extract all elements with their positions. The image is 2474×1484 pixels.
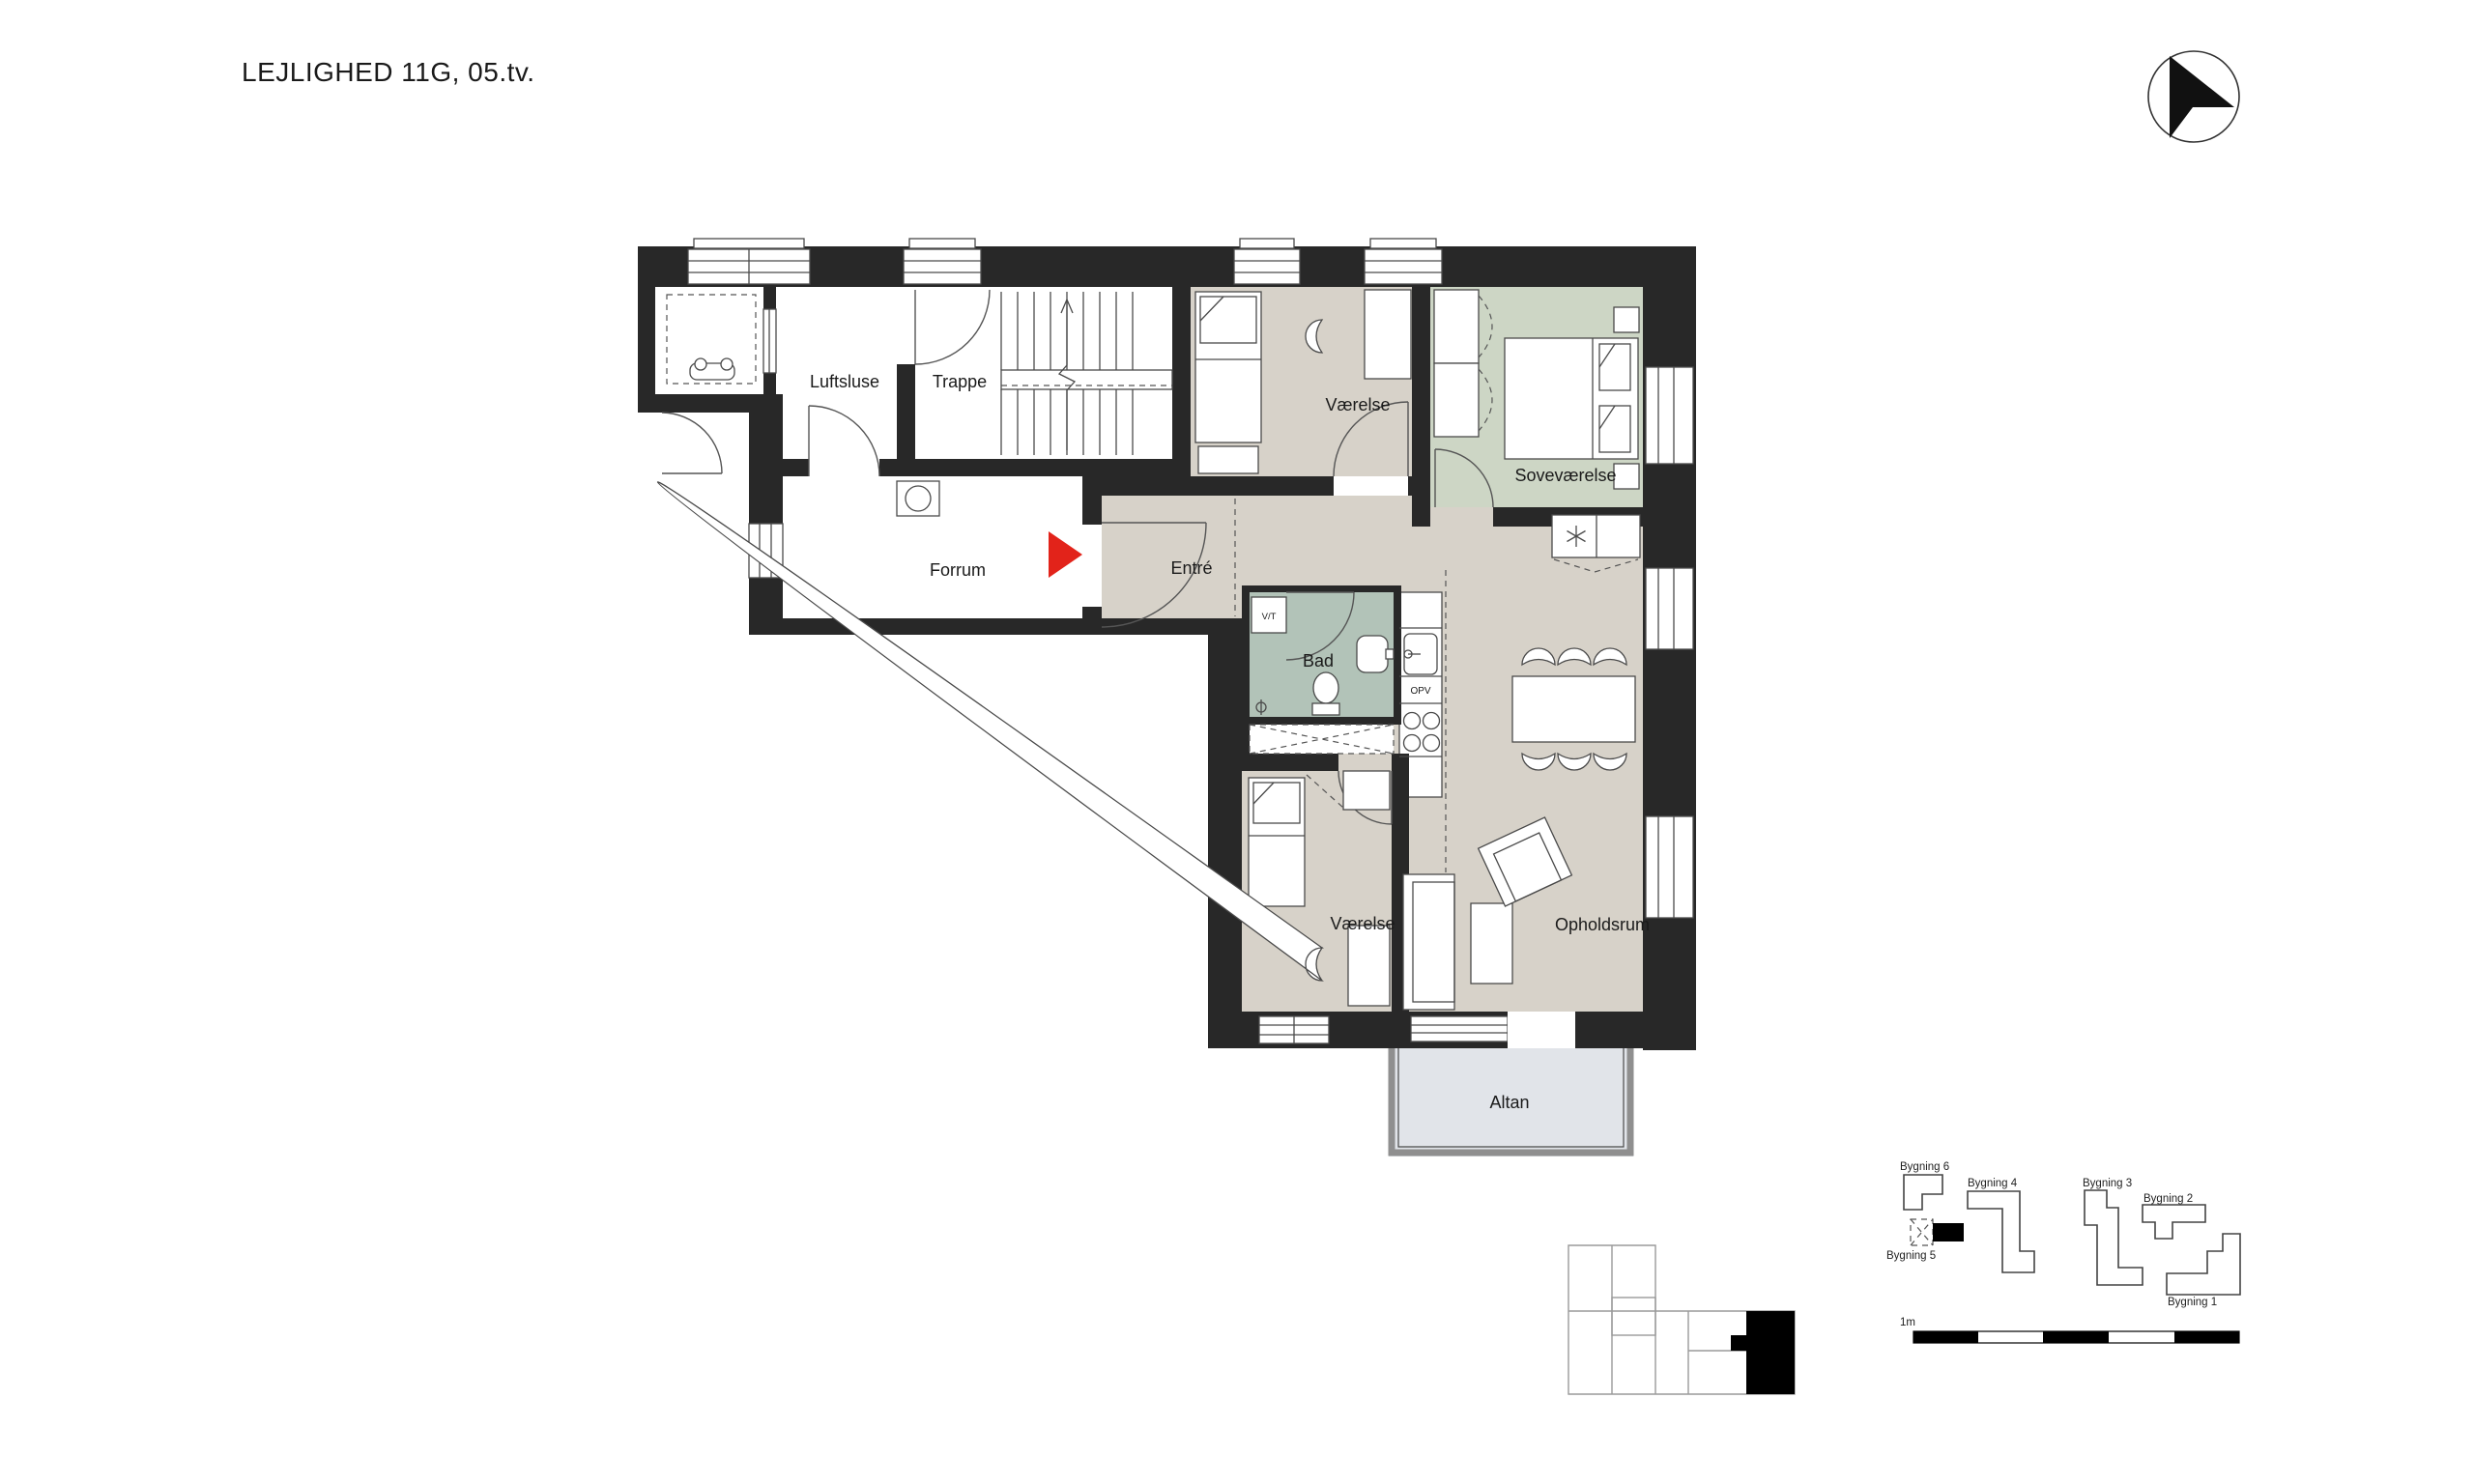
unit-highlight	[1731, 1311, 1795, 1394]
toilet	[1312, 672, 1339, 715]
bygning-2-shape	[2143, 1205, 2205, 1239]
window-right-2	[1646, 568, 1693, 649]
label-dishwasher: OPV	[1410, 686, 1430, 697]
scale-label: 1m	[1900, 1317, 1915, 1328]
sofa	[1403, 874, 1454, 1010]
wardrobe-vaerelse-syd	[1343, 771, 1390, 810]
desk-vaerelse-syd	[1348, 926, 1390, 1006]
dresser-vaerelse-nord	[1198, 446, 1258, 473]
bygning-6-shape	[1904, 1175, 1942, 1210]
window-top-1	[688, 239, 810, 284]
kitchen-sink	[1404, 634, 1437, 674]
label-entre: Entré	[1170, 558, 1212, 578]
nightstand-sovevaerelse-top	[1614, 307, 1639, 332]
nightstand-sovevaerelse-bottom	[1614, 464, 1639, 489]
window-top-4	[1365, 239, 1442, 284]
bygning-4-shape	[1968, 1191, 2034, 1272]
label-sovevaerelse: Soveværelse	[1514, 466, 1616, 485]
bed-vaerelse-syd	[1249, 778, 1305, 906]
label-bygning-4: Bygning 4	[1968, 1178, 2018, 1189]
label-trappe: Trappe	[933, 372, 987, 391]
unit-key-plan	[1568, 1245, 1795, 1394]
window-right-1	[1646, 367, 1693, 464]
label-bygning-6: Bygning 6	[1900, 1161, 1949, 1173]
window-top-2	[904, 239, 981, 284]
label-luftsluse: Luftsluse	[810, 372, 879, 391]
dining-table	[1512, 676, 1635, 742]
label-altan: Altan	[1489, 1093, 1529, 1112]
label-bygning-5: Bygning 5	[1886, 1250, 1936, 1262]
floorplan-canvas: LEJLIGHED 11G, 05.tv.	[0, 0, 2474, 1484]
bed-vaerelse-nord	[1195, 292, 1261, 442]
scale-bar: 1m	[1900, 1317, 2239, 1343]
label-forrum: Forrum	[930, 560, 986, 580]
window-right-3	[1646, 816, 1693, 918]
bygning-1-shape	[2167, 1234, 2240, 1295]
label-bygning-1: Bygning 1	[2168, 1297, 2217, 1308]
stair-landing	[1001, 370, 1172, 389]
label-bygning-2: Bygning 2	[2143, 1193, 2193, 1205]
double-bed-sovevaerelse	[1505, 338, 1638, 459]
bygning-5-marker	[1911, 1219, 1964, 1245]
building-key-plans: Bygning 6 Bygning 4 Bygning 3 Bygning 2 …	[1886, 1161, 2240, 1308]
label-vaerelse-syd: Værelse	[1330, 914, 1395, 933]
window-top-3	[1234, 239, 1300, 284]
forrum-fixture	[897, 481, 939, 516]
floor-plan: Luftsluse Trappe Værelse Soveværelse For…	[638, 239, 1696, 1156]
label-opholdsrum: Opholdsrum	[1555, 915, 1650, 934]
label-washer-dryer: V/T	[1262, 612, 1277, 622]
floor-entre	[1102, 496, 1256, 618]
door-stair-landing	[662, 413, 722, 473]
coffee-table	[1471, 903, 1512, 984]
page-title: LEJLIGHED 11G, 05.tv.	[242, 57, 535, 87]
label-vaerelse-nord: Værelse	[1325, 395, 1390, 414]
door-gap-trappe	[897, 290, 915, 364]
bygning-5-highlight	[1933, 1223, 1964, 1241]
north-arrow-icon	[2148, 51, 2239, 142]
desk-vaerelse-nord	[1365, 290, 1411, 379]
window-bottom-1	[1259, 1016, 1329, 1043]
balcony-door-gap	[1508, 1012, 1575, 1048]
window-bottom-2	[1411, 1016, 1508, 1042]
elevator-door	[763, 309, 776, 373]
label-bad: Bad	[1303, 651, 1334, 671]
bygning-3-shape	[2085, 1190, 2143, 1285]
label-bygning-3: Bygning 3	[2083, 1178, 2132, 1189]
